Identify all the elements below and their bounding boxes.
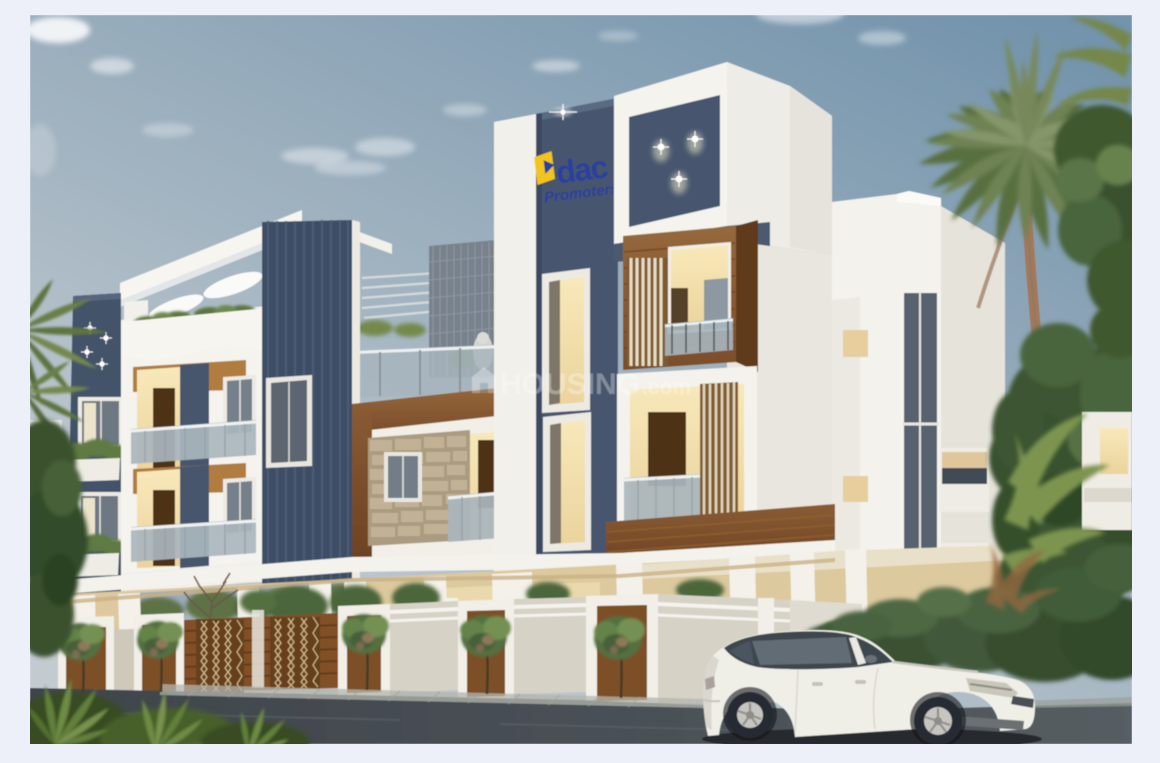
svg-text:HOUSING: HOUSING [500, 368, 640, 401]
svg-text:.com: .com [642, 376, 691, 399]
